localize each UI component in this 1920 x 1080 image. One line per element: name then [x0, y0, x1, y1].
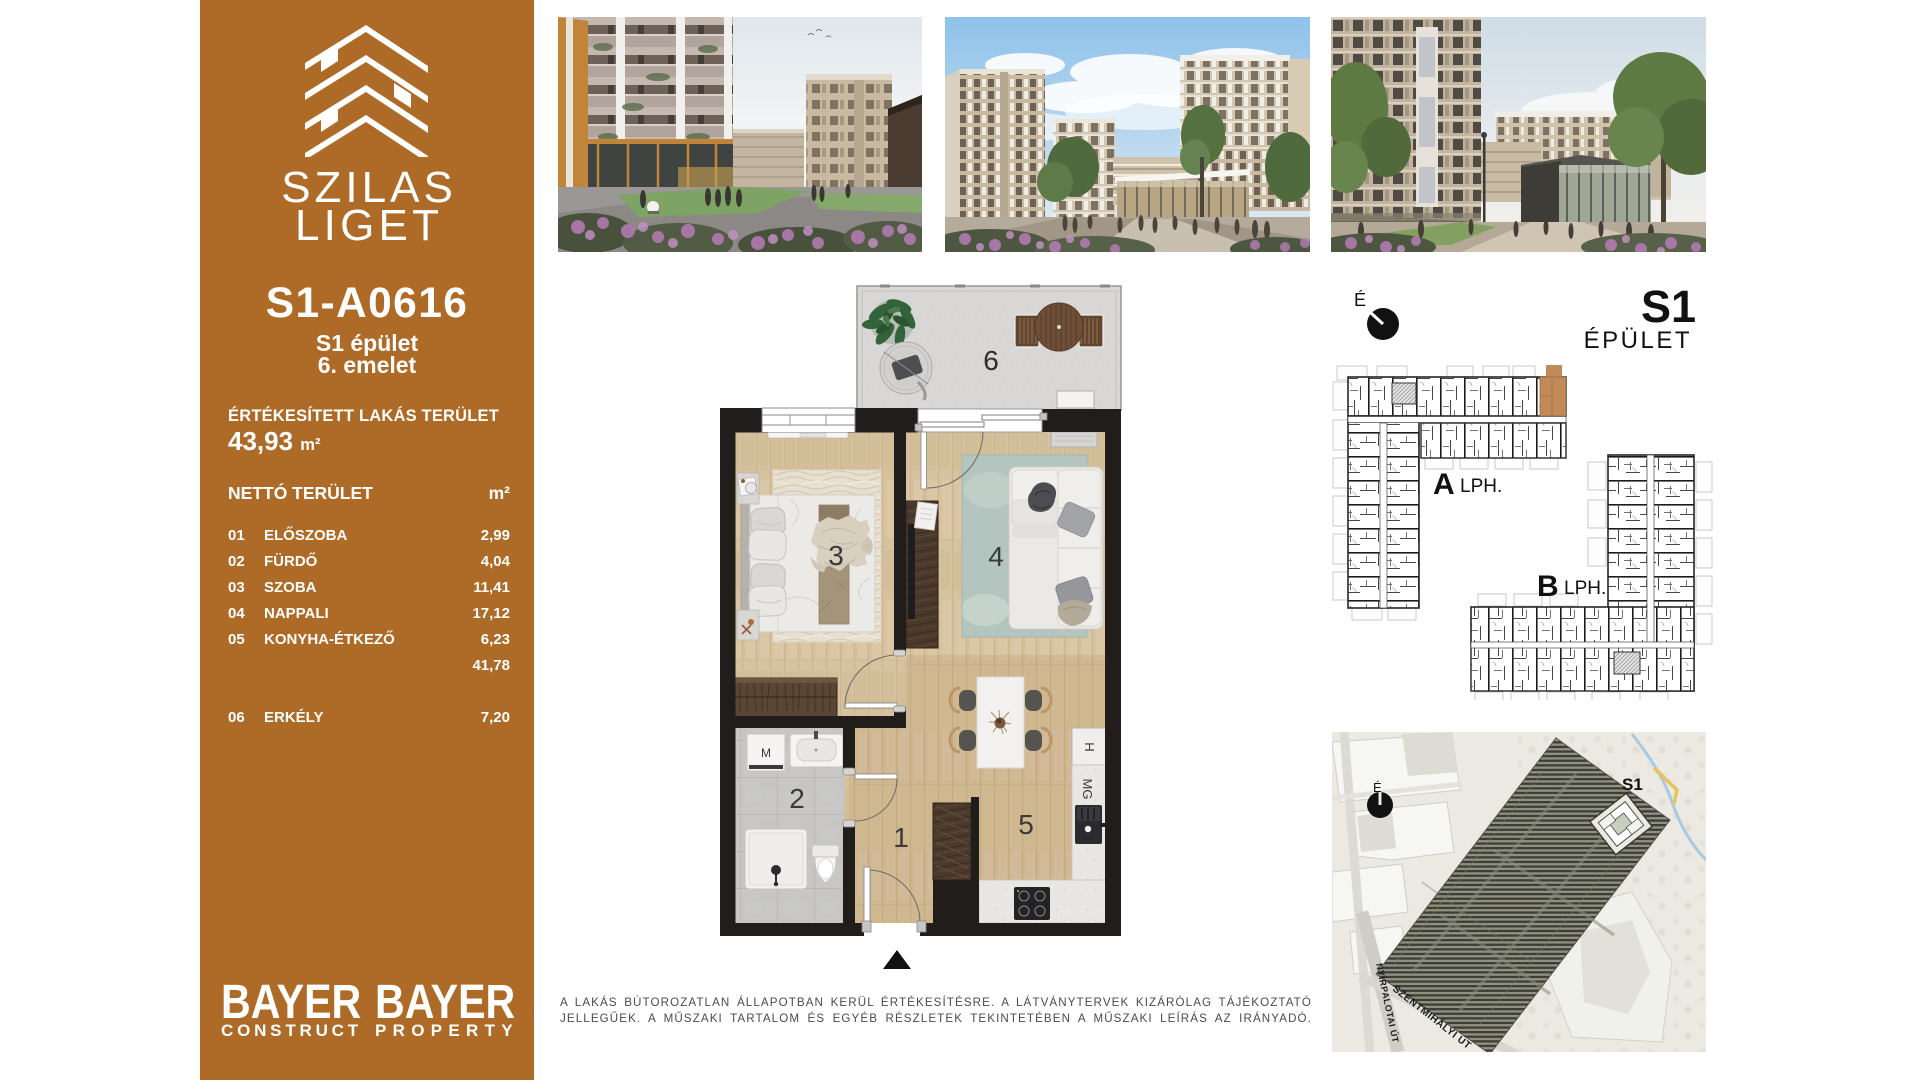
svg-text:5: 5 — [1018, 809, 1034, 840]
svg-text:6: 6 — [983, 345, 999, 376]
svg-text:LPH.: LPH. — [1460, 476, 1502, 497]
svg-text:LPH.: LPH. — [1564, 578, 1606, 599]
svg-text:MG: MG — [1080, 779, 1095, 800]
svg-text:M: M — [761, 746, 771, 760]
svg-text:É: É — [1354, 290, 1366, 310]
svg-text:H: H — [1082, 742, 1097, 751]
svg-text:A: A — [1433, 468, 1455, 501]
svg-text:S1: S1 — [1622, 775, 1643, 794]
svg-text:2: 2 — [789, 783, 805, 814]
svg-text:1: 1 — [893, 822, 909, 853]
svg-text:3: 3 — [828, 540, 844, 571]
svg-text:4: 4 — [988, 541, 1004, 572]
svg-text:B: B — [1537, 570, 1559, 603]
